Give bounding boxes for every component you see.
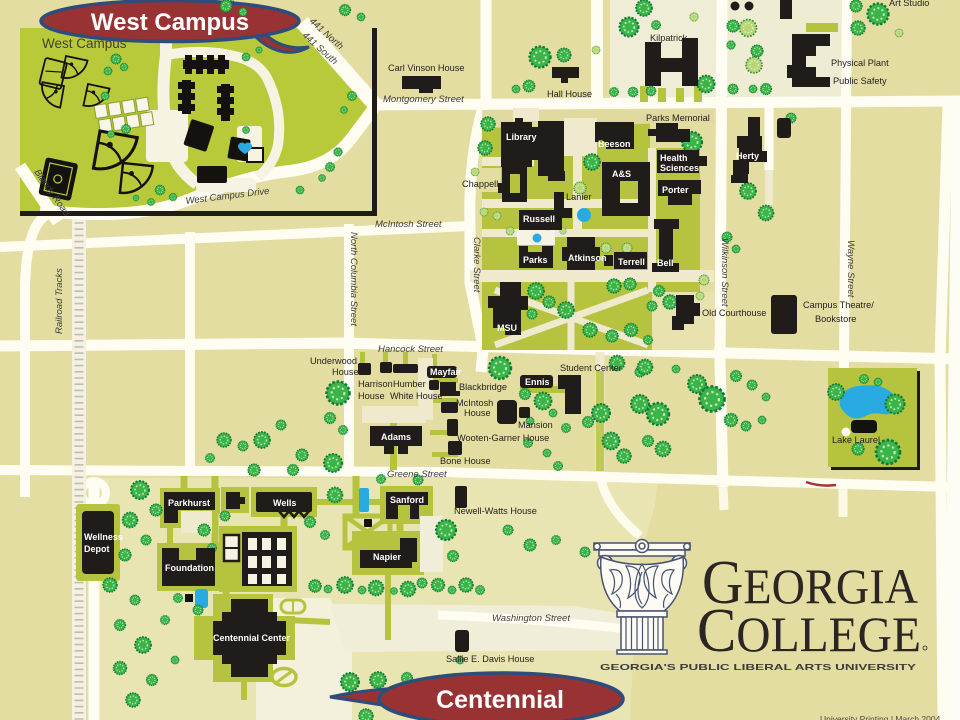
svg-text:A&S: A&S [612,169,631,179]
svg-text:Porter: Porter [662,185,689,195]
svg-text:House: House [464,408,491,418]
svg-text:Newell-Watts House: Newell-Watts House [454,506,537,516]
svg-text:Atkinson: Atkinson [568,253,607,263]
svg-text:Wellness: Wellness [84,532,123,542]
svg-text:Harrison: Harrison [358,379,393,389]
svg-text:Sanford: Sanford [390,495,424,505]
svg-text:Wayne Street: Wayne Street [845,240,856,298]
svg-text:Parkhurst: Parkhurst [168,498,210,508]
svg-text:Russell: Russell [523,214,555,224]
svg-text:Washington Street: Washington Street [492,613,570,624]
svg-text:House: House [332,367,359,377]
svg-text:Campus Theatre/: Campus Theatre/ [803,300,874,310]
svg-text:Beeson: Beeson [598,139,631,149]
svg-text:Hancock Street: Hancock Street [378,344,443,355]
svg-text:Student Center: Student Center [560,363,622,373]
svg-text:McIntosh Street: McIntosh Street [375,219,442,230]
svg-text:Humber: Humber [393,379,426,389]
svg-text:Greene Street: Greene Street [387,469,447,480]
svg-text:Bell: Bell [657,258,674,268]
svg-text:Foundation: Foundation [165,563,214,573]
svg-text:Underwood: Underwood [310,356,357,366]
svg-text:Herty: Herty [736,151,759,161]
svg-text:Adams: Adams [381,432,411,442]
svg-text:White House: White House [390,391,443,401]
svg-text:Old Courthouse: Old Courthouse [702,308,766,318]
svg-text:Hall House: Hall House [547,89,592,99]
svg-text:Parks Memorial: Parks Memorial [646,113,710,123]
svg-text:Physical Plant: Physical Plant [831,58,889,68]
svg-text:Bone House: Bone House [440,456,491,466]
svg-text:Wells: Wells [273,498,296,508]
svg-text:Parks: Parks [523,255,548,265]
svg-text:North Columbia Street: North Columbia Street [348,232,359,326]
svg-text:Depot: Depot [84,544,110,554]
svg-text:Clarke Street: Clarke Street [471,237,482,293]
svg-text:Wooten-Garner House: Wooten-Garner House [457,433,549,443]
svg-text:Terrell: Terrell [618,257,645,267]
svg-text:Library: Library [506,132,537,142]
svg-text:Wilkinson Street: Wilkinson Street [719,238,730,307]
svg-text:Carl Vinson House: Carl Vinson House [388,63,464,73]
svg-text:Lake Laurel: Lake Laurel [832,435,880,445]
svg-text:COLLEGE: COLLEGE [697,597,921,665]
svg-text:Public Safety: Public Safety [833,76,887,86]
svg-text:Ennis: Ennis [525,377,550,387]
svg-text:Mayfair: Mayfair [430,367,462,377]
svg-text:Napier: Napier [373,552,402,562]
svg-text:GEORGIA'S PUBLIC LIBERAL ARTS: GEORGIA'S PUBLIC LIBERAL ARTS UNIVERSITY [600,662,917,672]
svg-text:House: House [358,391,385,401]
svg-text:Sciences: Sciences [660,163,699,173]
svg-text:Centennial Center: Centennial Center [213,633,291,643]
svg-text:Kilpatrick: Kilpatrick [650,33,688,43]
svg-text:Centennial: Centennial [436,686,564,714]
svg-text:University Printing | March 20: University Printing | March 2004 [820,714,941,720]
svg-text:Bookstore: Bookstore [815,314,856,324]
svg-text:Health: Health [660,153,688,163]
svg-text:MSU: MSU [497,323,517,333]
svg-text:Chappell: Chappell [462,179,498,189]
svg-text:Art Studio: Art Studio [889,0,929,8]
svg-text:West Campus: West Campus [91,9,249,36]
svg-text:Blackbridge: Blackbridge [459,382,507,392]
svg-text:McIntosh: McIntosh [456,398,493,408]
svg-text:Railroad Tracks: Railroad Tracks [54,268,65,334]
svg-text:Mansion: Mansion [518,420,553,430]
svg-text:Sallie E. Davis House: Sallie E. Davis House [446,654,534,664]
svg-text:Montgomery Street: Montgomery Street [383,94,464,105]
svg-text:Lanier: Lanier [566,192,592,202]
